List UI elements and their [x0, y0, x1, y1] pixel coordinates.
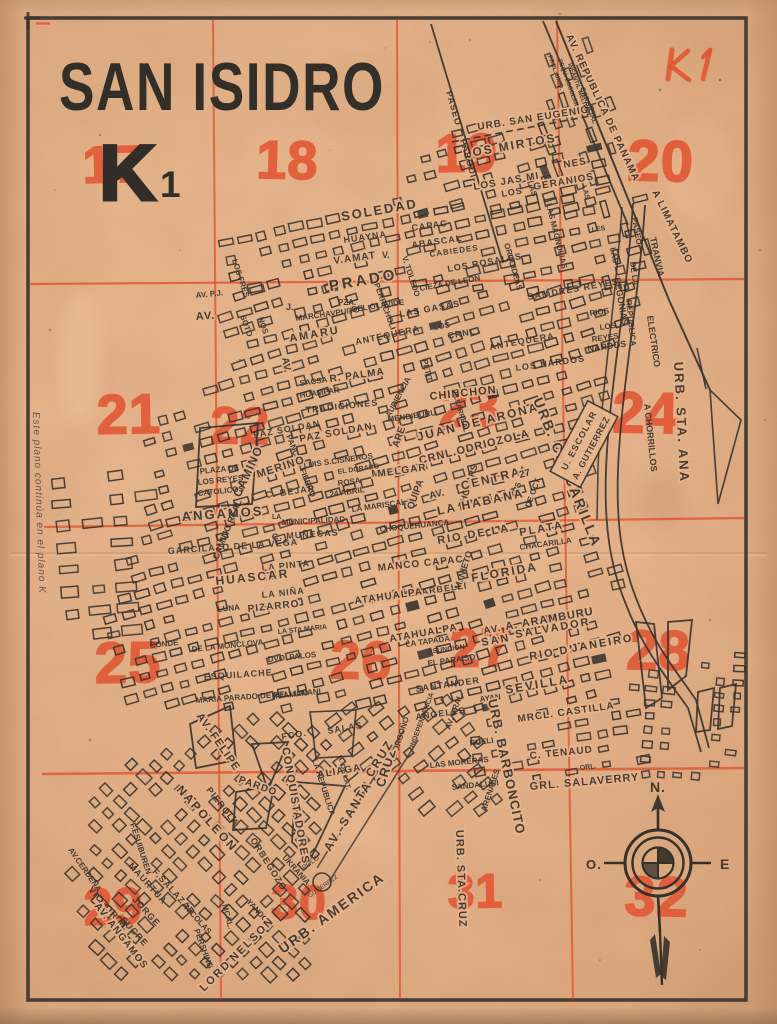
svg-text:18: 18	[256, 130, 319, 191]
svg-text:LA: LA	[272, 514, 281, 521]
svg-text:J.: J.	[286, 302, 294, 312]
svg-text:V.: V.	[382, 250, 390, 260]
svg-text:N.: N.	[650, 779, 666, 795]
svg-text:E: E	[720, 856, 730, 872]
svg-text:K: K	[99, 128, 156, 217]
svg-text:O.: O.	[586, 857, 602, 872]
svg-text:AV.: AV.	[195, 310, 215, 323]
svg-text:21: 21	[96, 382, 162, 446]
svg-text:20: 20	[627, 128, 695, 195]
svg-text:SAN ISIDRO: SAN ISIDRO	[59, 49, 385, 125]
svg-text:1: 1	[160, 164, 181, 205]
